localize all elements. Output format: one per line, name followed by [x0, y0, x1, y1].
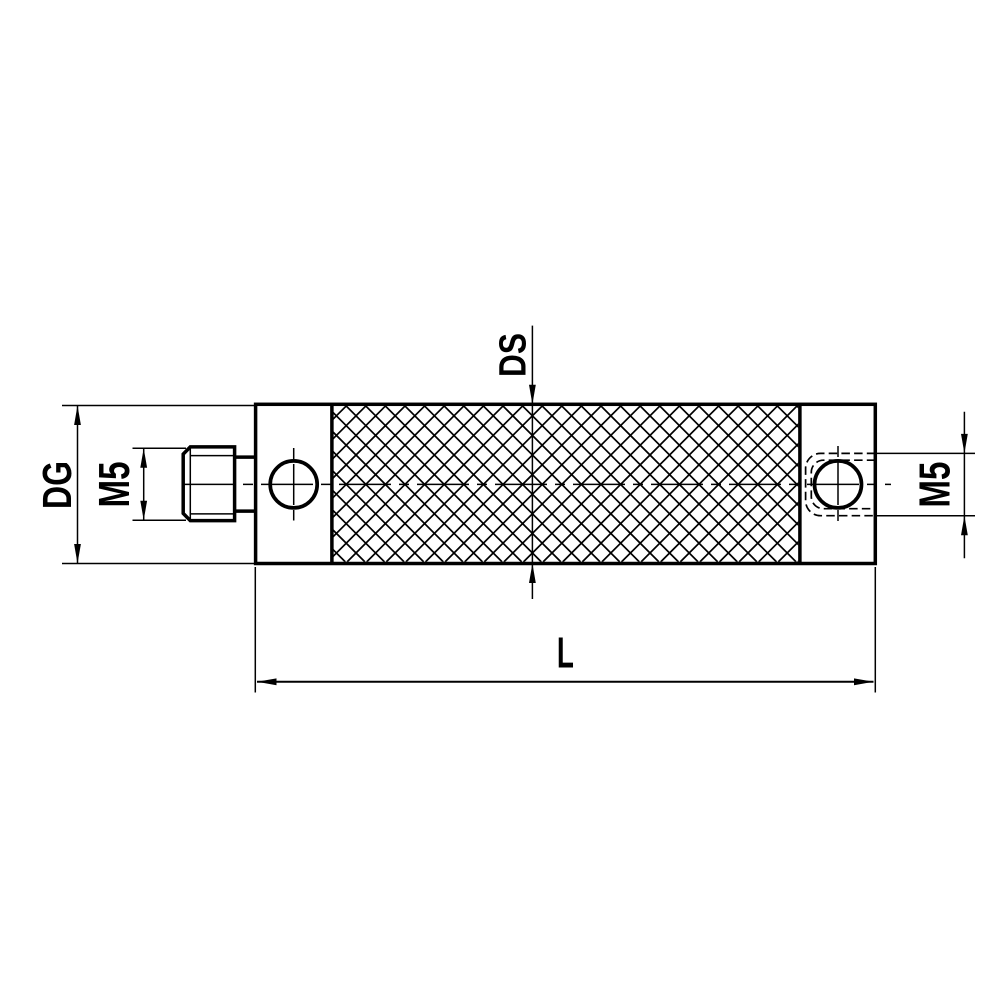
svg-text:DS: DS [492, 333, 535, 377]
svg-text:DG: DG [34, 461, 80, 509]
svg-text:M5: M5 [910, 462, 959, 508]
svg-text:L: L [557, 630, 574, 678]
svg-text:M5: M5 [90, 462, 139, 508]
